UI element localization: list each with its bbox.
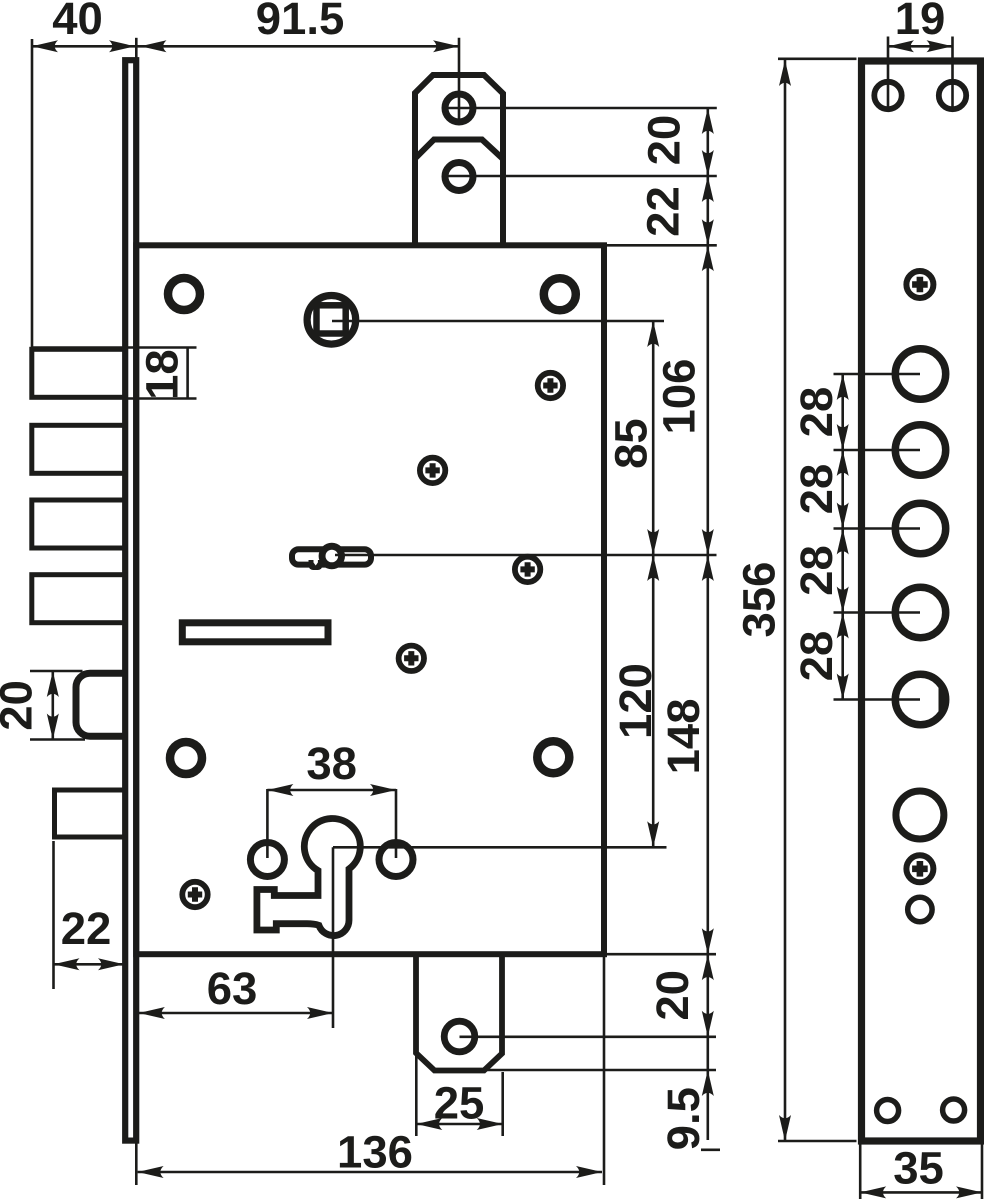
svg-text:38: 38 xyxy=(306,738,357,789)
svg-text:356: 356 xyxy=(734,562,785,638)
svg-text:35: 35 xyxy=(893,1143,944,1194)
svg-text:28: 28 xyxy=(791,464,842,515)
svg-text:85: 85 xyxy=(606,418,657,469)
svg-text:19: 19 xyxy=(895,0,946,44)
svg-text:20: 20 xyxy=(639,115,690,166)
svg-text:28: 28 xyxy=(791,631,842,682)
svg-text:20: 20 xyxy=(0,680,42,731)
svg-text:91.5: 91.5 xyxy=(256,0,345,44)
svg-text:22: 22 xyxy=(638,186,689,237)
svg-text:63: 63 xyxy=(207,963,258,1014)
svg-text:148: 148 xyxy=(658,698,709,774)
svg-text:9.5: 9.5 xyxy=(658,1087,709,1150)
svg-text:18: 18 xyxy=(137,349,188,400)
svg-text:22: 22 xyxy=(61,903,112,954)
svg-text:20: 20 xyxy=(647,970,698,1021)
svg-text:28: 28 xyxy=(791,387,842,438)
svg-text:120: 120 xyxy=(610,663,661,739)
svg-text:40: 40 xyxy=(52,0,103,44)
svg-text:28: 28 xyxy=(791,545,842,596)
svg-text:106: 106 xyxy=(653,359,704,435)
svg-text:136: 136 xyxy=(337,1127,413,1178)
svg-text:25: 25 xyxy=(434,1078,485,1129)
